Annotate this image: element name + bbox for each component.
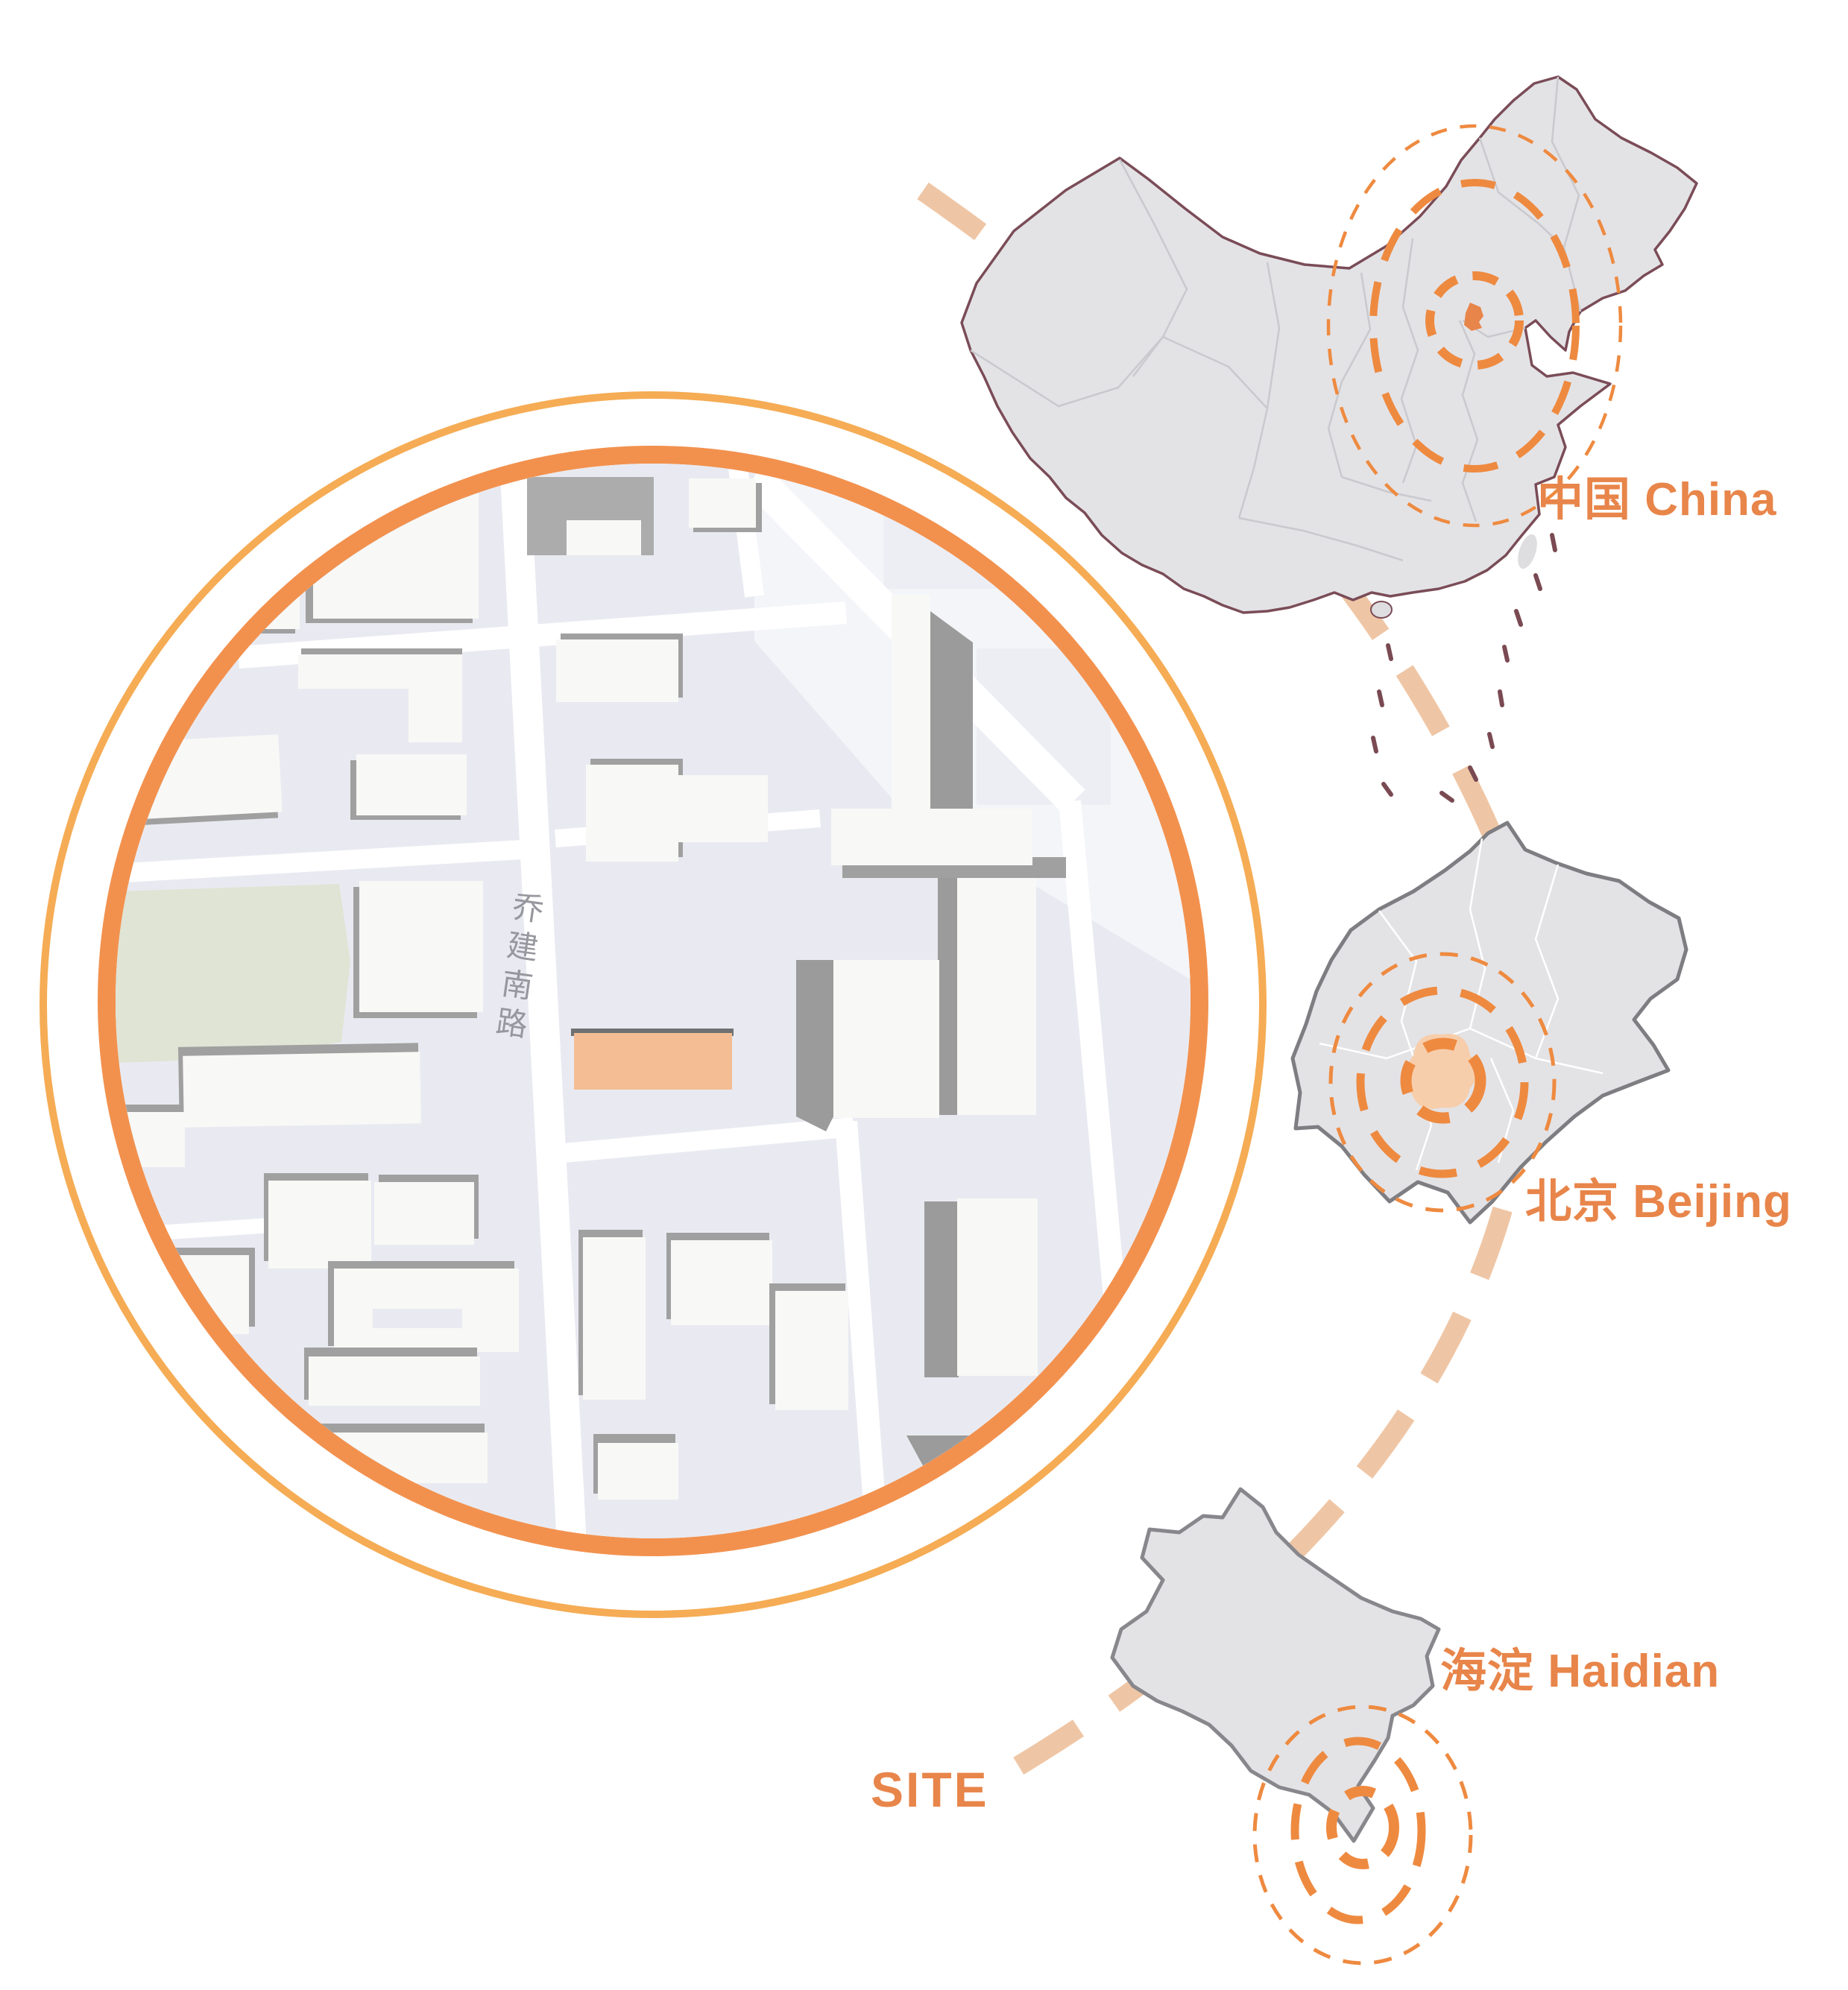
building [796, 809, 1066, 1131]
china-outline [962, 77, 1697, 613]
site-label: SITE [871, 1765, 989, 1814]
haidian-label: 海淀 Haidian [1440, 1649, 1720, 1695]
site-building [571, 1029, 734, 1090]
site-location-diagram: 中国 China 北京 Beijing 海淀 Haidian SITE 乔建南路 [0, 0, 1848, 1990]
building [567, 520, 641, 555]
china-label: 中国 China [1537, 477, 1776, 523]
haidian-outline [1112, 1489, 1439, 1841]
beijing-map [1293, 823, 1686, 1222]
beijing-label: 北京 Beijing [1525, 1179, 1792, 1225]
haidian-map [1112, 1489, 1471, 1963]
site-detail-map [41, 388, 1271, 1617]
